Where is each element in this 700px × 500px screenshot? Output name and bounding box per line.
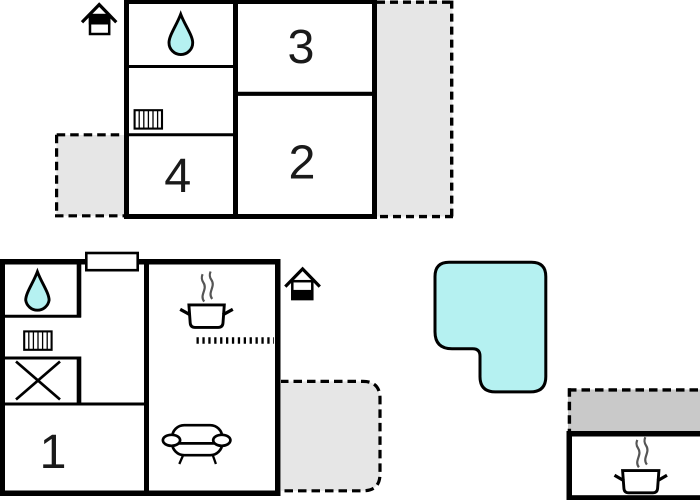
svg-text:2: 2 <box>289 135 316 189</box>
svg-text:3: 3 <box>288 20 315 74</box>
svg-text:4: 4 <box>164 149 191 203</box>
svg-text:1: 1 <box>40 425 67 479</box>
